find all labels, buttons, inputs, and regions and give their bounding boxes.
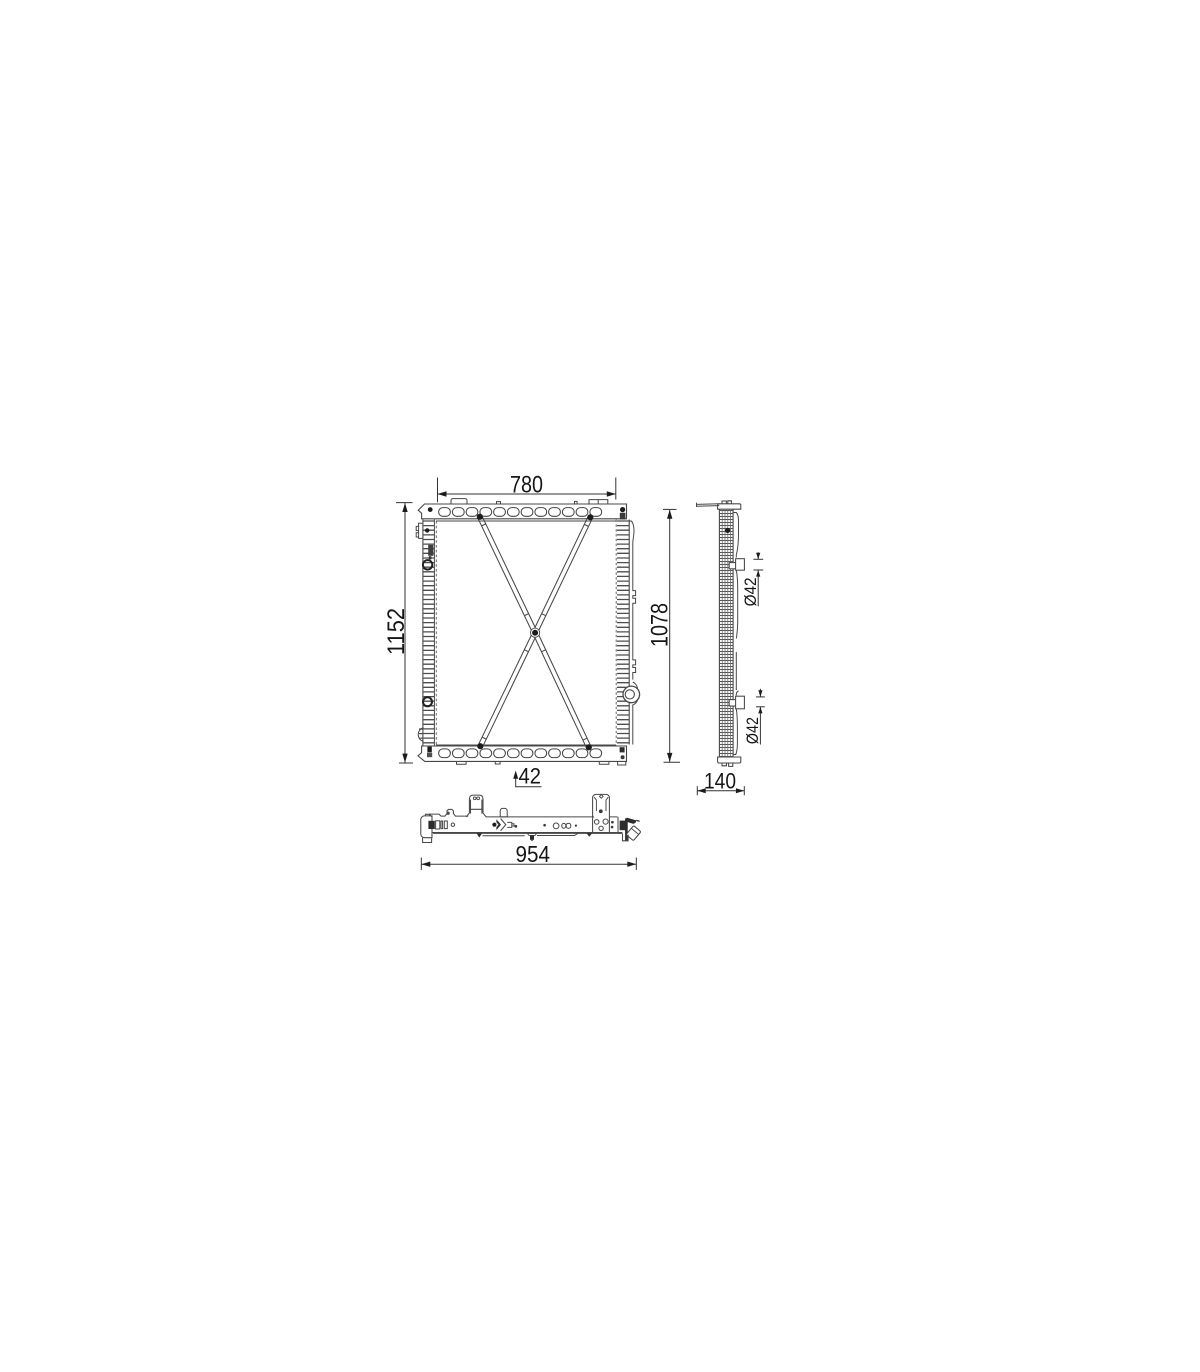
svg-text:1152: 1152 xyxy=(383,608,410,655)
svg-text:42: 42 xyxy=(519,764,542,789)
svg-text:140: 140 xyxy=(704,768,736,793)
svg-text:Ø42: Ø42 xyxy=(743,717,762,744)
svg-text:954: 954 xyxy=(516,841,551,867)
svg-text:780: 780 xyxy=(510,471,543,498)
svg-text:Ø42: Ø42 xyxy=(741,577,760,606)
svg-text:1078: 1078 xyxy=(647,603,674,647)
